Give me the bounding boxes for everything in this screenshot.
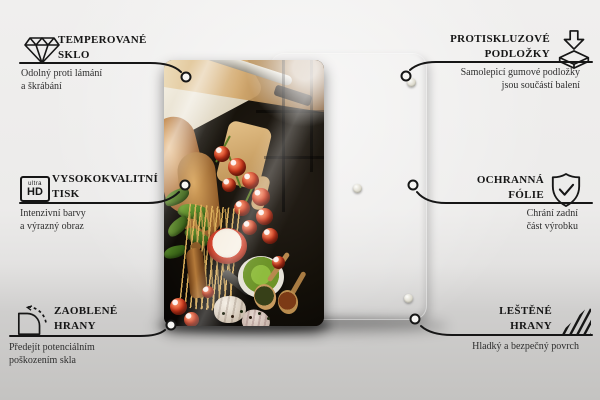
title-line: TISK: [52, 188, 80, 200]
feature-title-tempered-glass: TEMPEROVANÉ SKLO: [58, 33, 147, 62]
title-line: OCHRANNÁ: [477, 174, 544, 186]
rubber-pad: [404, 294, 413, 303]
feature-desc-protective-film: Chrání zadní část výrobku: [527, 207, 578, 233]
desc-line: Odolný proti lámání: [21, 68, 102, 79]
desc-line: a výrazný obraz: [20, 221, 84, 232]
ultra-hd-icon: ultra HD: [20, 176, 50, 202]
desc-line: část výrobku: [527, 221, 578, 232]
rubber-pad: [407, 78, 416, 87]
title-line: PROTISKLUZOVÉ: [450, 33, 550, 45]
title-line: LEŠTĚNÉ: [499, 305, 552, 317]
title-line: SKLO: [58, 49, 90, 61]
feature-title-protective-film: OCHRANNÁ FÓLIE: [477, 173, 544, 202]
glass-glare: [164, 60, 324, 326]
feature-desc-anti-slip: Samolepicí gumové podložky jsou součástí…: [461, 66, 580, 92]
food-photo-print: [164, 60, 324, 326]
feature-desc-print: Intenzivní barvy a výrazný obraz: [20, 207, 86, 233]
product-feature-infographic: TEMPEROVANÉ SKLO Odolný proti lámání a š…: [0, 0, 600, 400]
desc-line: Intenzivní barvy: [20, 208, 86, 219]
feature-desc-rounded-edges: Předejít potenciálním poškozením skla: [9, 341, 95, 367]
polished-edges-icon: [558, 303, 592, 335]
feature-desc-polished-edges: Hladký a bezpečný povrch: [472, 340, 579, 353]
desc-line: Chrání zadní: [527, 208, 578, 219]
feature-title-rounded-edges: ZAOBLENÉ HRANY: [54, 304, 118, 333]
title-line: HRANY: [54, 320, 96, 332]
title-line: VYSOKOKVALITNÍ: [52, 173, 158, 185]
feature-desc-tempered-glass: Odolný proti lámání a škrábání: [21, 67, 102, 93]
diamond-icon: [24, 35, 60, 65]
feature-title-polished-edges: LEŠTĚNÉ HRANY: [499, 304, 552, 333]
title-line: ZAOBLENÉ: [54, 305, 118, 317]
rubber-pad: [353, 184, 362, 193]
desc-line: Předejít potenciálním: [9, 342, 95, 353]
title-line: HRANY: [510, 320, 552, 332]
title-line: FÓLIE: [508, 189, 544, 201]
ultra-hd-icon-text: HD: [27, 187, 43, 198]
anti-slip-pad-icon: [556, 30, 592, 70]
shield-check-icon: [550, 172, 582, 208]
desc-line: Hladký a bezpečný povrch: [472, 341, 579, 352]
desc-line: Samolepicí gumové podložky: [461, 67, 580, 78]
desc-line: poškozením skla: [9, 355, 76, 366]
title-line: PODLOŽKY: [485, 48, 550, 60]
title-line: TEMPEROVANÉ: [58, 34, 147, 46]
glass-board: [164, 60, 324, 326]
rounded-corner-icon: [15, 305, 49, 337]
desc-line: a škrábání: [21, 81, 62, 92]
feature-title-anti-slip: PROTISKLUZOVÉ PODLOŽKY: [450, 32, 550, 61]
feature-title-print: VYSOKOKVALITNÍ TISK: [52, 172, 158, 201]
desc-line: jsou součástí balení: [502, 80, 580, 91]
